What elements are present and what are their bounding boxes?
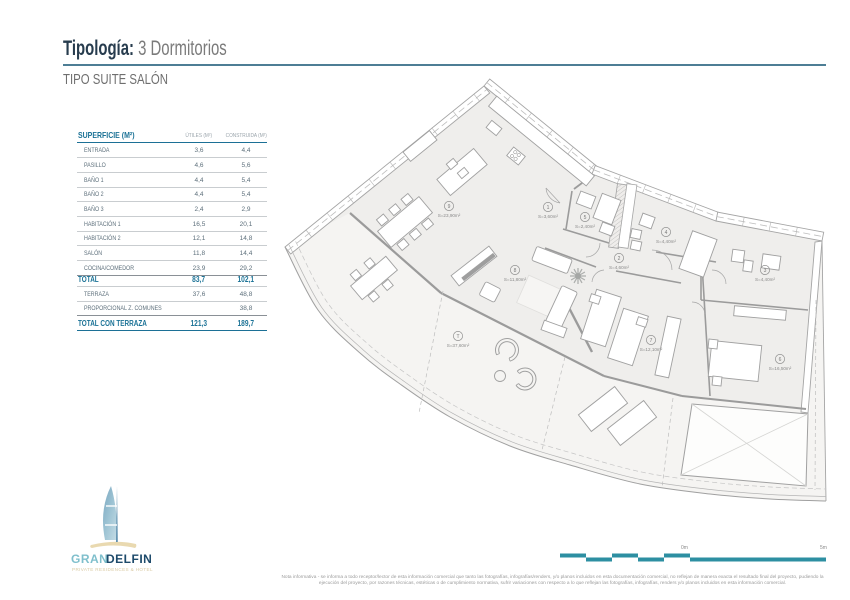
svg-text:3: 3 [764, 268, 767, 274]
svg-text:S=2,40m²: S=2,40m² [575, 224, 596, 229]
svg-text:S=4,40m²: S=4,40m² [656, 239, 677, 244]
svg-text:S=16,50m²: S=16,50m² [769, 366, 792, 371]
svg-text:0m: 0m [681, 545, 688, 551]
svg-text:DELFIN: DELFIN [106, 552, 152, 566]
svg-text:PRIVATE RESIDENCES & HOTEL: PRIVATE RESIDENCES & HOTEL [72, 567, 153, 572]
svg-text:6: 6 [779, 357, 782, 363]
svg-text:8: 8 [514, 268, 517, 274]
svg-text:T: T [456, 334, 459, 340]
svg-text:1: 1 [547, 205, 550, 211]
svg-text:S=3,60m²: S=3,60m² [538, 214, 559, 219]
svg-text:S=4,60m²: S=4,60m² [609, 265, 630, 270]
svg-text:5m: 5m [820, 545, 827, 551]
svg-text:S=4,40m²: S=4,40m² [755, 277, 776, 282]
svg-text:S=12,10m²: S=12,10m² [640, 347, 663, 352]
svg-text:9: 9 [448, 204, 451, 210]
svg-text:7: 7 [650, 338, 653, 344]
svg-text:4: 4 [665, 230, 668, 236]
svg-text:S=11,80m²: S=11,80m² [504, 277, 527, 282]
svg-text:5: 5 [584, 215, 587, 221]
svg-text:2: 2 [618, 256, 621, 262]
svg-text:S=23,90m²: S=23,90m² [438, 213, 461, 218]
svg-text:S=37,60m²: S=37,60m² [447, 343, 470, 348]
svg-text:GRAN: GRAN [71, 552, 108, 566]
